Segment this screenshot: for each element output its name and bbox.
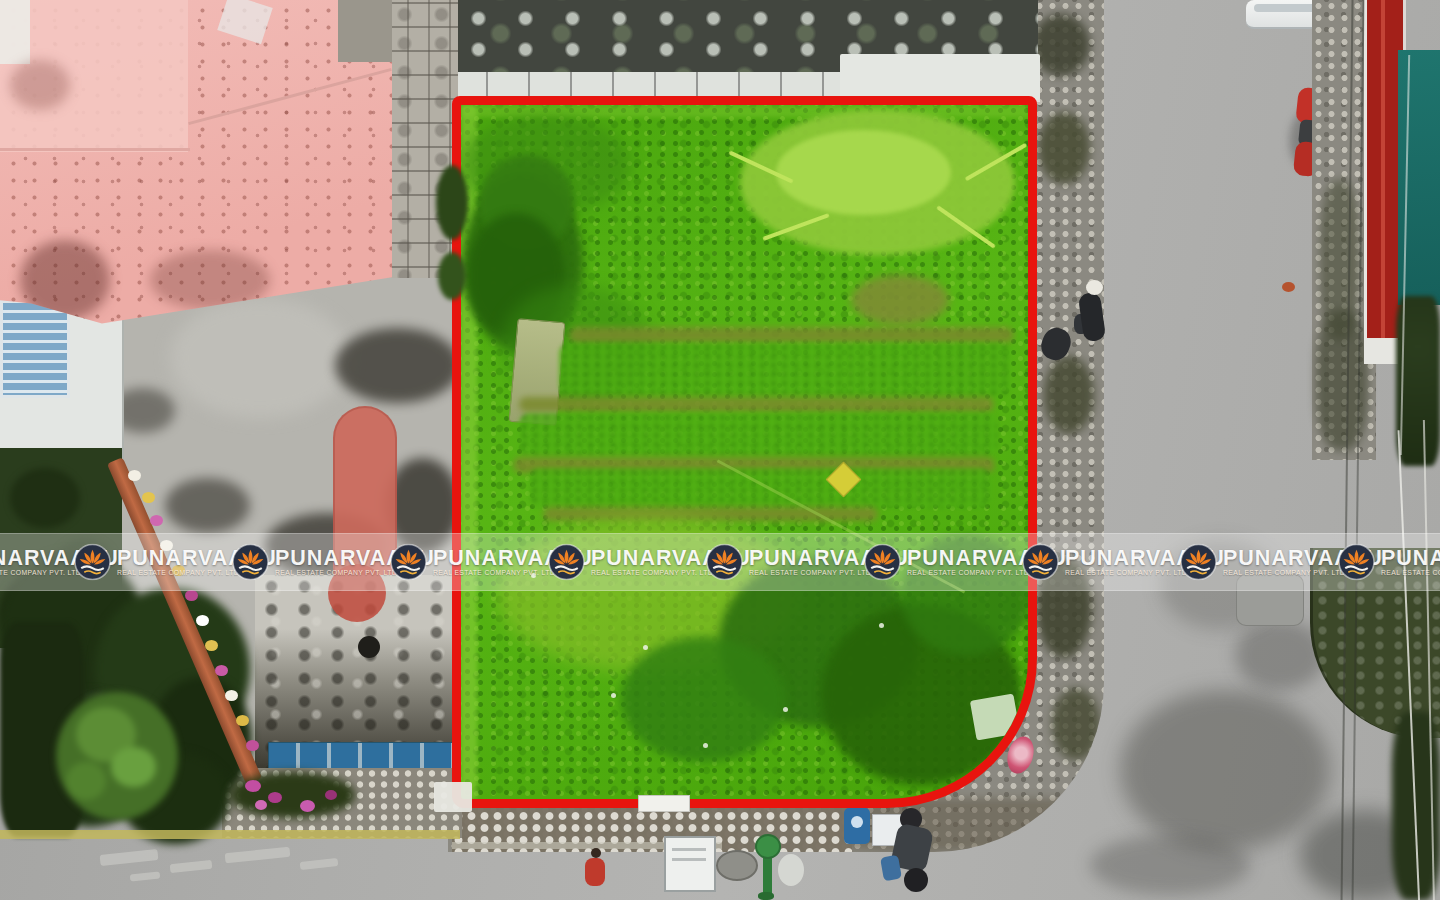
bush-highlight bbox=[111, 747, 156, 787]
watermark-unit: PUNARVAASU REAL ESTATE COMPANY PVT. LTD. bbox=[706, 544, 864, 581]
brand-logo-icon bbox=[548, 544, 585, 581]
roof-gray-patch bbox=[338, 0, 392, 62]
debris bbox=[783, 707, 788, 712]
pedestrian-head bbox=[591, 848, 601, 858]
roof-ridge bbox=[1381, 0, 1385, 340]
highlighted-land-plot bbox=[452, 96, 1037, 808]
clover-row bbox=[559, 343, 1011, 395]
watermark-unit: PUNARVAASU REAL ESTATE COMPANY PVT. LTD. bbox=[1180, 544, 1338, 581]
sign-symbol bbox=[851, 816, 863, 828]
yellow-curb-line bbox=[0, 830, 460, 839]
brand-text-block: PUNARVAASU REAL ESTATE COMPANY PVT. LTD. bbox=[1381, 547, 1440, 576]
road-stain bbox=[1120, 690, 1330, 850]
flower bbox=[205, 640, 218, 651]
dry-grass-patch bbox=[851, 275, 949, 325]
green-hand-pump bbox=[752, 834, 780, 900]
brand-logo-icon bbox=[390, 544, 427, 581]
flower bbox=[185, 590, 198, 601]
watermark-band: PUNARVAASU REAL ESTATE COMPANY PVT. LTD. bbox=[0, 533, 1440, 591]
box-detail bbox=[672, 848, 706, 851]
magenta-flower bbox=[255, 800, 267, 810]
car-windshield bbox=[1254, 4, 1318, 12]
shrub bbox=[10, 468, 80, 528]
pedestrian-body bbox=[1078, 292, 1106, 343]
roof-ridge bbox=[0, 148, 190, 151]
bright-bush bbox=[56, 692, 178, 820]
street-object-white bbox=[778, 854, 804, 886]
flower bbox=[142, 492, 155, 503]
watermark-unit: PUNARVAASU REAL ESTATE COMPANY PVT. LTD. bbox=[1338, 544, 1440, 581]
bush-highlight bbox=[66, 762, 106, 800]
brand-logo-icon bbox=[74, 544, 111, 581]
road-stain bbox=[1090, 835, 1250, 895]
magenta-flower bbox=[268, 792, 282, 803]
magenta-flower bbox=[245, 780, 261, 792]
white-sign bbox=[638, 795, 690, 812]
garden-row bbox=[519, 397, 994, 412]
stone-paved-strip bbox=[386, 0, 458, 292]
brand-logo-icon bbox=[706, 544, 743, 581]
brand-logo-icon bbox=[232, 544, 269, 581]
dark-spot bbox=[358, 636, 380, 658]
flower bbox=[196, 615, 209, 626]
brand-logo-icon bbox=[1022, 544, 1059, 581]
moss-patch bbox=[1044, 356, 1094, 434]
flower bbox=[215, 665, 228, 676]
watermark-unit: PUNARVAASU REAL ESTATE COMPANY PVT. LTD. bbox=[232, 544, 390, 581]
moss-patch bbox=[1038, 112, 1090, 184]
boundary-wall-section bbox=[840, 54, 1040, 100]
debris bbox=[879, 623, 884, 628]
watermark-unit: PUNARVAASU REAL ESTATE COMPANY PVT. LTD. bbox=[0, 544, 74, 581]
blue-sign bbox=[844, 808, 870, 844]
brand-logo-icon bbox=[864, 544, 901, 581]
bush-over-boundary bbox=[438, 252, 466, 300]
roof-stain bbox=[10, 60, 70, 110]
light-square-object bbox=[970, 693, 1020, 740]
pump-base bbox=[758, 892, 774, 900]
debris bbox=[703, 743, 708, 748]
flower bbox=[150, 515, 163, 526]
parked-motorcycle bbox=[882, 806, 940, 900]
pump-head bbox=[755, 834, 781, 859]
flower bbox=[246, 740, 259, 751]
pedestrian-body bbox=[585, 858, 605, 886]
watermark-unit: PUNARVAASU REAL ESTATE COMPANY PVT. LTD. bbox=[864, 544, 1022, 581]
watermark-unit: PUNARVAASU REAL ESTATE COMPANY PVT. LTD. bbox=[1022, 544, 1180, 581]
concrete-stain bbox=[165, 478, 250, 533]
concrete-light-patch bbox=[170, 298, 350, 418]
box-detail bbox=[672, 858, 706, 861]
clover-row bbox=[519, 413, 997, 455]
blue-louver-roof bbox=[0, 300, 70, 398]
watermark-unit: PUNARVAASU REAL ESTATE COMPANY PVT. LTD. bbox=[74, 544, 232, 581]
brand-logo-icon bbox=[1338, 544, 1375, 581]
motorcycle-crate bbox=[880, 855, 902, 882]
motorcycle-wheel bbox=[904, 868, 928, 892]
pedestrian-red bbox=[582, 848, 608, 890]
pedestrian bbox=[1074, 280, 1106, 364]
flower bbox=[128, 470, 141, 481]
debris bbox=[643, 645, 648, 650]
brand-tagline: REAL ESTATE COMPANY PVT. LTD. bbox=[1381, 570, 1440, 577]
road-debris bbox=[1282, 282, 1295, 292]
utility-box bbox=[664, 836, 716, 892]
moss-patch bbox=[1032, 14, 1090, 76]
aerial-photo: PUNARVAASU REAL ESTATE COMPANY PVT. LTD. bbox=[0, 0, 1440, 900]
watermark-unit: PUNARVAASU REAL ESTATE COMPANY PVT. LTD. bbox=[390, 544, 548, 581]
white-structure bbox=[1364, 338, 1398, 364]
garden-row bbox=[569, 327, 1014, 343]
pink-roof-building bbox=[0, 0, 392, 330]
fern-tuft-highlight bbox=[776, 130, 951, 215]
concrete-stain bbox=[335, 328, 460, 403]
magenta-flower bbox=[300, 800, 315, 812]
roof-white-corner bbox=[0, 0, 30, 64]
bush-over-boundary bbox=[436, 165, 468, 240]
flower bbox=[236, 715, 249, 726]
brand-logo-icon bbox=[1180, 544, 1217, 581]
clover-row bbox=[529, 468, 991, 508]
debris bbox=[611, 693, 616, 698]
white-corner-stone bbox=[434, 782, 472, 812]
brand-name: PUNARVAASU bbox=[1381, 547, 1440, 569]
flower bbox=[225, 690, 238, 701]
magenta-flower bbox=[325, 790, 337, 800]
watermark-unit: PUNARVAASU REAL ESTATE COMPANY PVT. LTD. bbox=[548, 544, 706, 581]
pedestrian-head bbox=[1086, 280, 1103, 295]
